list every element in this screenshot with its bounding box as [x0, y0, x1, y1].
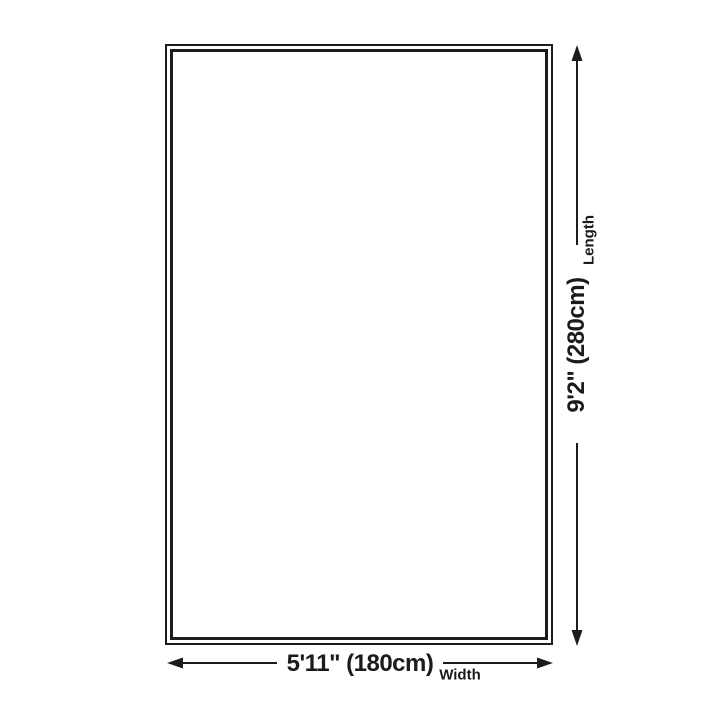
length-label: Length: [581, 215, 598, 265]
arrowhead-right-icon: [537, 658, 553, 669]
width-label: Width: [439, 667, 481, 684]
arrowhead-up-icon: [572, 45, 583, 61]
dimension-arrows: [0, 0, 720, 720]
arrowhead-left-icon: [167, 658, 183, 669]
product-dimension-diagram: 9'2" (280cm) Length 5'11" (180cm) Width: [0, 0, 720, 720]
length-value: 9'2" (280cm): [563, 277, 591, 412]
arrowhead-down-icon: [572, 630, 583, 646]
width-value: 5'11" (180cm): [287, 650, 434, 678]
